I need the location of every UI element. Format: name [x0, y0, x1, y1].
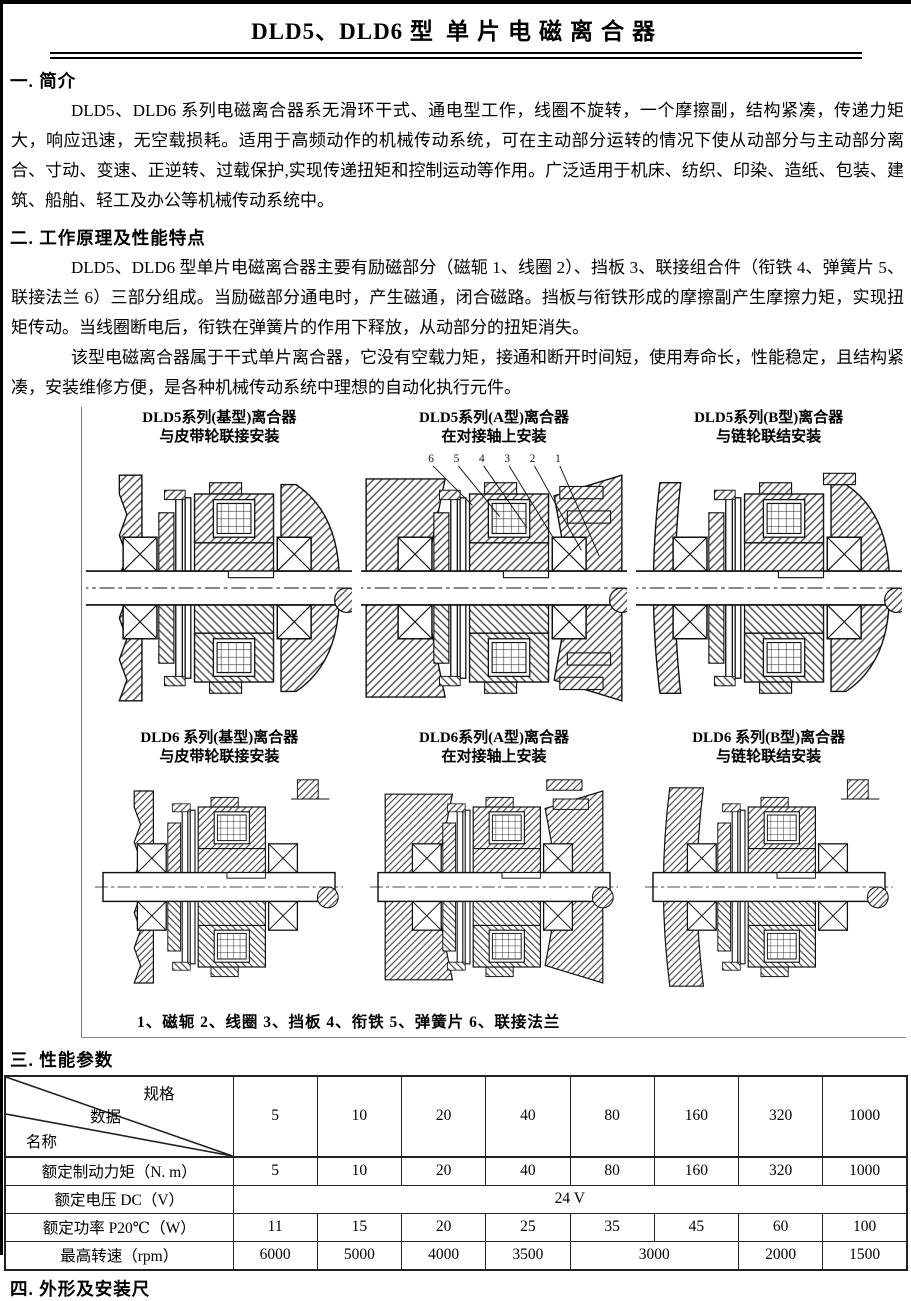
principle-paragraph-1: DLD5、DLD6 型单片电磁离合器主要有励磁部分（磁轭 1、线圈 2）、挡板 … [11, 253, 904, 343]
clutch-diagram-dld5-b [636, 447, 902, 729]
spec-cell: 5 [233, 1157, 317, 1186]
figure-row-dld6: DLD6 系列(基型)离合器 与皮带轮联接安装 DLD6系列(A型)离合器 在对… [82, 729, 906, 1007]
corner-label-data: 数据 [90, 1105, 121, 1127]
figure-caption: DLD5系列(A型)离合器 在对接轴上安装 [357, 409, 632, 447]
figure-area: DLD5系列(基型)离合器 与皮带轮联接安装 DLD5系列(A型)离合器 在对接… [81, 407, 906, 1038]
section-heading-specs: 三. 性能参数 [10, 1047, 911, 1072]
spec-table: 规格 数据 名称 5 10 20 40 80 160 320 1000 额定制动… [4, 1075, 908, 1271]
figure-caption: DLD6系列(A型)离合器 在对接轴上安装 [357, 729, 632, 767]
figure-caption-line1: DLD6 系列(B型)离合器 [631, 729, 906, 748]
leader-number: 1 [555, 453, 561, 465]
spec-cell: 320 [739, 1157, 823, 1186]
figure-dld5-b: DLD5系列(B型)离合器 与链轮联结安装 [631, 409, 906, 729]
spec-header-row: 规格 数据 名称 5 10 20 40 80 160 320 1000 [5, 1076, 907, 1157]
row-label: 额定功率 P20℃（W） [5, 1213, 233, 1241]
figure-caption-line2: 在对接轴上安装 [357, 748, 632, 767]
spec-corner-cell: 规格 数据 名称 [5, 1076, 233, 1157]
spec-cell: 1000 [823, 1157, 907, 1186]
spec-cell: 1500 [823, 1241, 907, 1270]
spec-cell: 45 [654, 1213, 738, 1241]
clutch-diagram-dld6-a [361, 767, 627, 1007]
spec-cell: 60 [739, 1213, 823, 1241]
spec-column-header: 5 [233, 1076, 317, 1157]
spec-cell: 10 [317, 1157, 401, 1186]
figure-caption-line2: 与皮带轮联接安装 [82, 428, 357, 447]
spec-cell: 80 [570, 1157, 654, 1186]
spec-column-header: 40 [486, 1076, 570, 1157]
figure-caption-line1: DLD6 系列(基型)离合器 [82, 729, 357, 748]
leader-number: 6 [428, 453, 434, 465]
spec-cell: 20 [402, 1157, 486, 1186]
spec-cell: 4000 [402, 1241, 486, 1270]
spec-column-header: 20 [402, 1076, 486, 1157]
spec-column-header: 1000 [823, 1076, 907, 1157]
spec-cell-merged: 3000 [570, 1241, 739, 1270]
clutch-diagram-dld5-basic [86, 447, 352, 729]
spec-row-power: 额定功率 P20℃（W） 11 15 20 25 35 45 60 100 [5, 1213, 907, 1241]
spec-cell: 100 [823, 1213, 907, 1241]
figure-dld5-basic: DLD5系列(基型)离合器 与皮带轮联接安装 [82, 409, 357, 729]
figure-row-dld5: DLD5系列(基型)离合器 与皮带轮联接安装 DLD5系列(A型)离合器 在对接… [82, 409, 906, 729]
principle-paragraph-2: 该型电磁离合器属于干式单片离合器，它没有空载力矩，接通和断开时间短，使用寿命长，… [11, 343, 904, 403]
corner-label-name: 名称 [26, 1130, 57, 1152]
section-heading-intro: 一. 简介 [10, 68, 911, 93]
figure-caption: DLD6 系列(B型)离合器 与链轮联结安装 [631, 729, 906, 767]
row-label: 额定制动力矩（N. m） [5, 1157, 233, 1186]
section-heading-principle: 二. 工作原理及性能特点 [10, 225, 911, 250]
spec-column-header: 320 [739, 1076, 823, 1157]
figure-caption: DLD5系列(B型)离合器 与链轮联结安装 [631, 409, 906, 447]
figure-caption-line2: 与链轮联结安装 [631, 428, 906, 447]
figure-caption-line1: DLD5系列(基型)离合器 [82, 409, 357, 428]
spec-cell: 40 [486, 1157, 570, 1186]
page-title: DLD5、DLD6 型单片电磁离合器 [3, 12, 911, 46]
row-label: 最高转速（rpm） [5, 1241, 233, 1270]
section-heading-dimensions: 四. 外形及安装尺 [10, 1276, 911, 1301]
spec-row-speed: 最高转速（rpm） 6000 5000 4000 3500 3000 2000 … [5, 1241, 907, 1270]
row-label: 额定电压 DC（V） [5, 1185, 233, 1213]
page-title-model: DLD5、DLD6 型 [251, 19, 434, 44]
spec-cell: 35 [570, 1213, 654, 1241]
parts-legend: 1、磁轭 2、线圈 3、挡板 4、衔铁 5、弹簧片 6、联接法兰 [137, 1010, 906, 1032]
figure-dld6-basic: DLD6 系列(基型)离合器 与皮带轮联接安装 [82, 729, 357, 1007]
figure-caption-line1: DLD5系列(A型)离合器 [357, 409, 632, 428]
leader-number: 5 [454, 453, 460, 465]
spec-cell: 20 [402, 1213, 486, 1241]
figure-caption: DLD5系列(基型)离合器 与皮带轮联接安装 [82, 409, 357, 447]
spec-cell: 11 [233, 1213, 317, 1241]
spec-row-voltage: 额定电压 DC（V） 24 V [5, 1185, 907, 1213]
spec-cell: 6000 [233, 1241, 317, 1270]
intro-paragraph: DLD5、DLD6 系列电磁离合器系无滑环干式、通电型工作，线圈不旋转，一个摩擦… [11, 96, 904, 216]
spec-cell: 2000 [739, 1241, 823, 1270]
leader-number: 2 [530, 453, 536, 465]
figure-dld6-a: DLD6系列(A型)离合器 在对接轴上安装 [357, 729, 632, 1007]
leader-number: 3 [504, 453, 510, 465]
figure-caption-line2: 与链轮联结安装 [631, 748, 906, 767]
figure-caption-line2: 与皮带轮联接安装 [82, 748, 357, 767]
figure-caption-line1: DLD6系列(A型)离合器 [357, 729, 632, 748]
figure-caption-line1: DLD5系列(B型)离合器 [631, 409, 906, 428]
spec-cell: 160 [654, 1157, 738, 1186]
figure-caption-line2: 在对接轴上安装 [357, 428, 632, 447]
figure-dld6-b: DLD6 系列(B型)离合器 与链轮联结安装 [631, 729, 906, 1007]
figure-caption: DLD6 系列(基型)离合器 与皮带轮联接安装 [82, 729, 357, 767]
clutch-diagram-dld6-b [636, 767, 902, 1007]
figure-dld5-a: DLD5系列(A型)离合器 在对接轴上安装 6 5 4 3 2 [357, 409, 632, 729]
spec-cell: 5000 [317, 1241, 401, 1270]
page-title-type: 单片电磁离合器 [446, 19, 663, 44]
spec-cell-merged: 24 V [233, 1185, 907, 1213]
spec-column-header: 160 [654, 1076, 738, 1157]
spec-column-header: 80 [570, 1076, 654, 1157]
title-divider [50, 52, 862, 59]
spec-cell: 15 [317, 1213, 401, 1241]
spec-cell: 25 [486, 1213, 570, 1241]
clutch-diagram-dld5-a: 6 5 4 3 2 1 [361, 447, 627, 729]
clutch-diagram-dld6-basic [86, 767, 352, 1007]
document-page: { "page": { "title_left": "DLD5、DLD6 型",… [0, 0, 911, 1255]
spec-row-torque: 额定制动力矩（N. m） 5 10 20 40 80 160 320 1000 [5, 1157, 907, 1186]
corner-label-spec: 规格 [143, 1082, 174, 1104]
leader-number: 4 [479, 453, 485, 465]
spec-column-header: 10 [317, 1076, 401, 1157]
spec-cell: 3500 [486, 1241, 570, 1270]
